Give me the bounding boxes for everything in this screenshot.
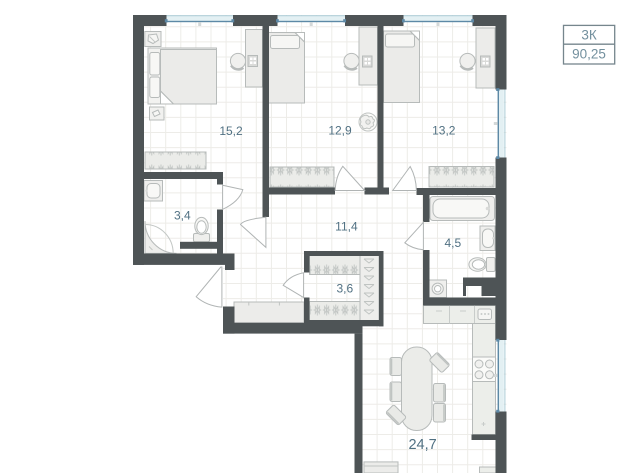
svg-text:4,5: 4,5 — [444, 236, 461, 250]
svg-text:12,9: 12,9 — [328, 123, 352, 137]
svg-text:3К: 3К — [581, 27, 597, 42]
svg-text:15,2: 15,2 — [219, 124, 243, 138]
svg-text:3,6: 3,6 — [336, 282, 353, 296]
svg-text:24,7: 24,7 — [408, 437, 436, 453]
svg-text:90,25: 90,25 — [572, 47, 606, 62]
svg-text:13,2: 13,2 — [432, 123, 456, 137]
svg-text:3,4: 3,4 — [174, 208, 191, 222]
svg-text:11,4: 11,4 — [335, 220, 358, 234]
